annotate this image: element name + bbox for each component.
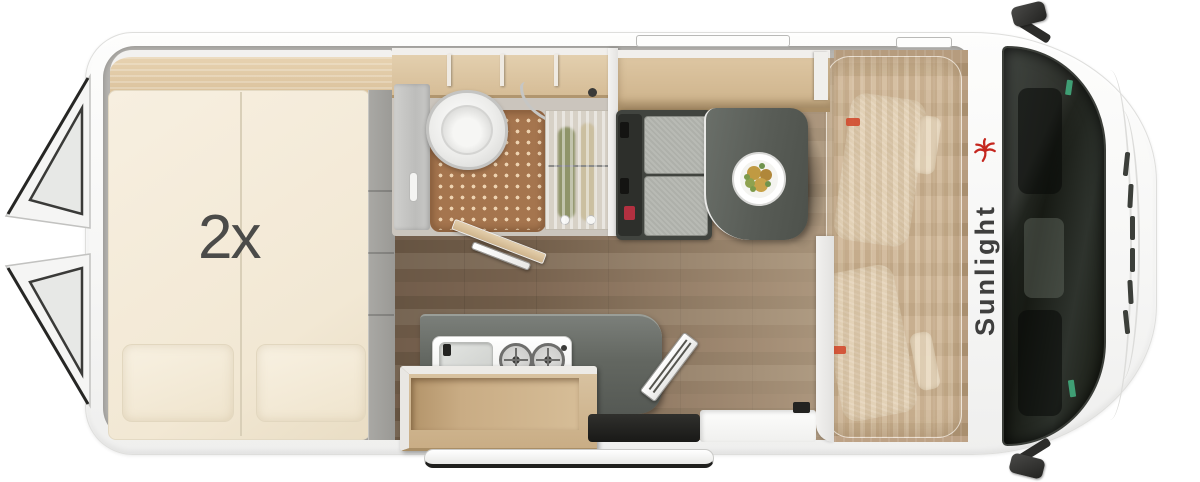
bed-side-frame: [368, 90, 395, 440]
seatbelt-buckle: [620, 178, 629, 194]
hood-vent: [1130, 216, 1135, 240]
pillow-right: [256, 344, 366, 422]
bench-cushion: [644, 116, 708, 174]
exterior-entry-step: [424, 449, 714, 468]
seat-marker-red: [846, 118, 860, 126]
bench-cushion: [644, 176, 708, 236]
hob-knob: [561, 345, 567, 351]
bathroom: [392, 48, 618, 236]
drop-down-bed-panel: [826, 56, 962, 438]
faucet: [588, 88, 597, 97]
wing-mirror-bottom: [1008, 452, 1046, 480]
dashboard-shape: [1018, 310, 1062, 416]
fire-extinguisher: [624, 206, 635, 220]
wing-mirror-top: [1010, 0, 1048, 28]
plate-of-food: [731, 151, 787, 207]
brand-logo: Sunlight: [970, 166, 1001, 336]
step-hardware: [793, 402, 810, 413]
bathroom-door-panel: [394, 84, 430, 230]
rear-doors-open: [0, 0, 100, 482]
roof-vent-slot: [636, 35, 790, 47]
bathroom-door-handle: [409, 172, 418, 202]
steering-area: [1024, 218, 1064, 298]
campervan-floorplan: 2x: [0, 0, 1200, 482]
palm-icon: [972, 136, 998, 164]
dinette-bench: [616, 110, 712, 240]
seatbelt-buckle: [620, 122, 629, 138]
cab-step-wall: [816, 236, 834, 442]
wardrobe-hanging-clothes: [545, 110, 611, 230]
kitchen-faucet: [443, 344, 451, 356]
pillow-left: [122, 344, 234, 422]
roof-vent-slot: [896, 37, 952, 48]
dashboard-shape: [1018, 88, 1062, 194]
entry-floor-step: [700, 410, 816, 442]
kitchen-open-shelf: [400, 366, 597, 451]
dinette-overhead-cabinet: [618, 50, 830, 112]
toilet: [426, 90, 508, 170]
seat-marker-red: [832, 346, 846, 354]
hood-vent: [1130, 248, 1135, 272]
entry-doorway: [588, 414, 700, 442]
bed-count-label: 2x: [198, 202, 259, 273]
